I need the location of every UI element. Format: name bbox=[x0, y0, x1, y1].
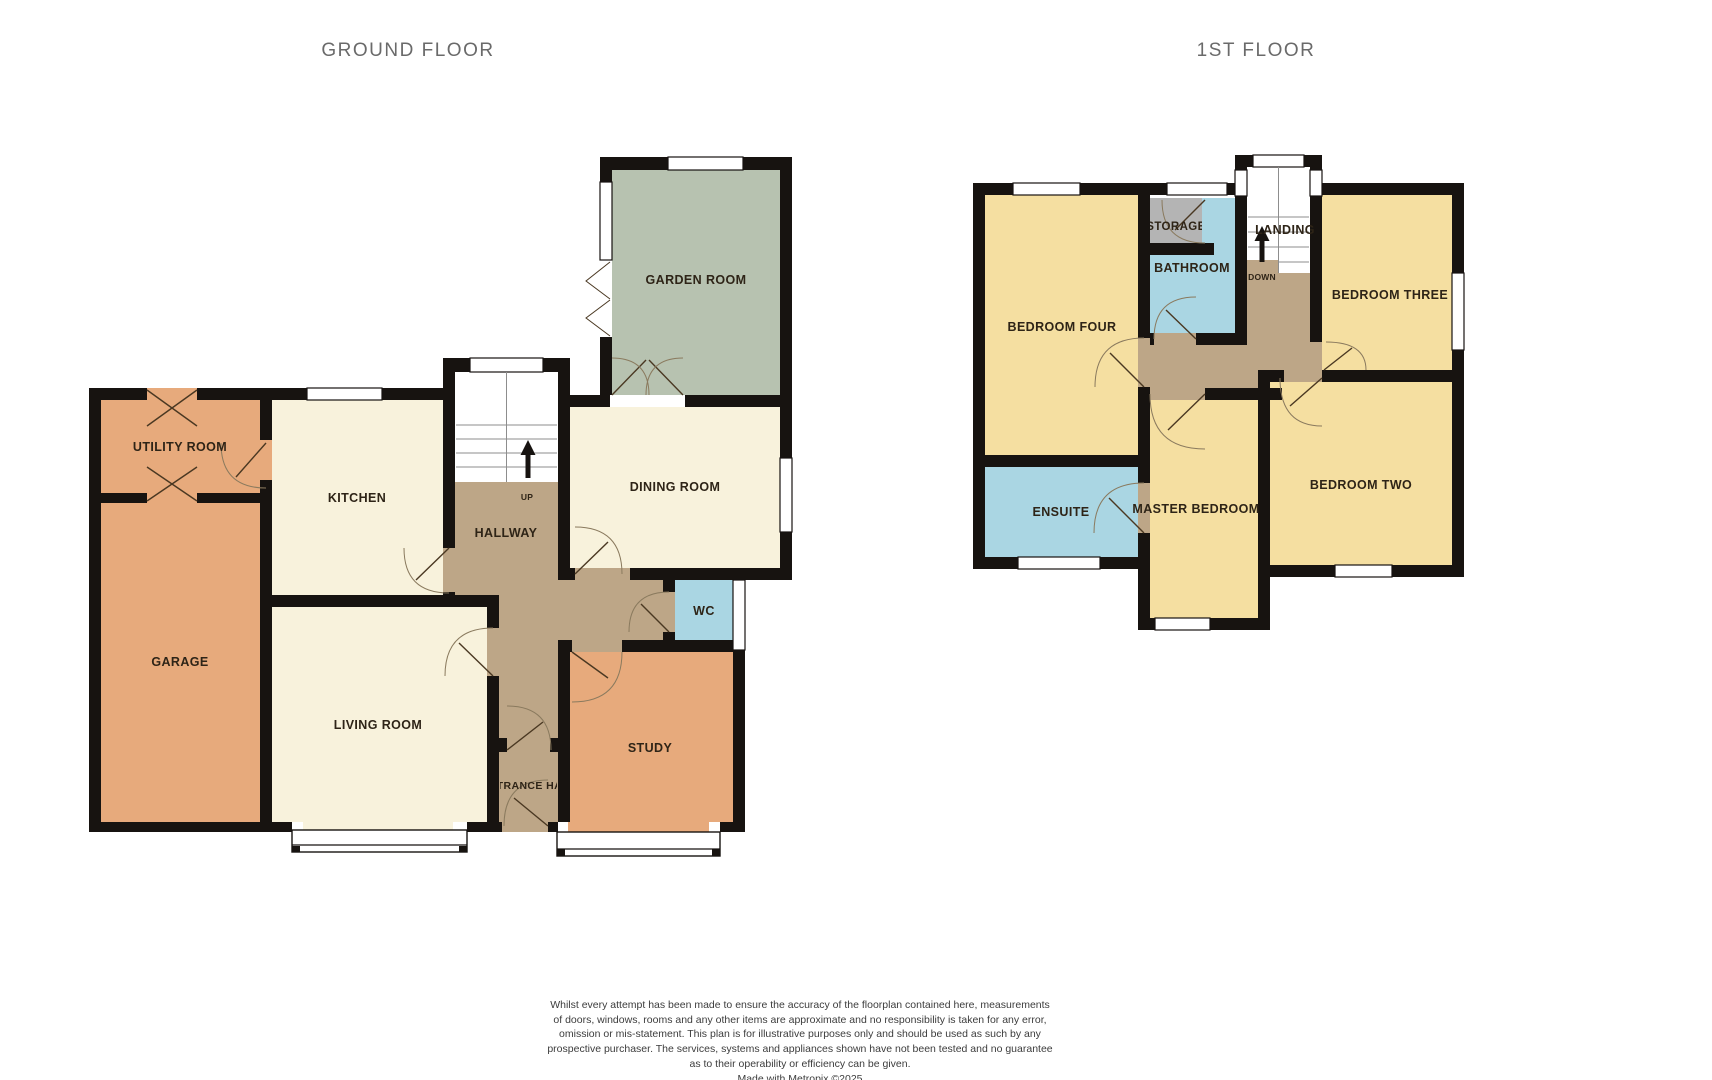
room-label-utility-room: UTILITY ROOM bbox=[133, 440, 227, 454]
room-label-hallway: HALLWAY bbox=[475, 526, 538, 540]
room-label-wc: WC bbox=[693, 604, 715, 618]
room-label-living-room: LIVING ROOM bbox=[334, 718, 422, 732]
disclaimer: Whilst every attempt has been made to en… bbox=[480, 998, 1120, 1080]
stairs-up-label: UP bbox=[521, 492, 533, 502]
room-label-kitchen: KITCHEN bbox=[328, 491, 386, 505]
first-floor-plan bbox=[973, 155, 1464, 630]
room-label-garage: GARAGE bbox=[151, 655, 208, 669]
room-label-study: STUDY bbox=[628, 741, 672, 755]
room-label-bathroom: BATHROOM bbox=[1154, 261, 1230, 275]
living-room-bay-window bbox=[292, 830, 467, 852]
room-label-landing: LANDING bbox=[1255, 223, 1315, 237]
room-label-ensuite: ENSUITE bbox=[1033, 505, 1090, 519]
first-floor-title: 1ST FLOOR bbox=[1197, 40, 1316, 62]
room-label-bedroom-four: BEDROOM FOUR bbox=[1008, 320, 1117, 334]
study-bay-window bbox=[557, 832, 720, 856]
stairs-down-label: DOWN bbox=[1248, 272, 1276, 282]
room-label-storage: STORAGE bbox=[1150, 220, 1202, 234]
disclaimer-line: as to their operability or efficiency ca… bbox=[480, 1057, 1120, 1072]
disclaimer-line: Whilst every attempt has been made to en… bbox=[480, 998, 1120, 1013]
credit-line: Made with Metropix ©2025 bbox=[480, 1072, 1120, 1080]
disclaimer-line: of doors, windows, rooms and any other i… bbox=[480, 1013, 1120, 1028]
disclaimer-line: prospective purchaser. The services, sys… bbox=[480, 1042, 1120, 1057]
disclaimer-line: omission or mis-statement. This plan is … bbox=[480, 1027, 1120, 1042]
room-label-garden-room: GARDEN ROOM bbox=[646, 273, 747, 287]
ground-floor-plan bbox=[89, 157, 792, 856]
floorplan-drawing bbox=[0, 0, 1712, 1080]
ground-floor-title: GROUND FLOOR bbox=[321, 40, 494, 62]
room-label-dining-room: DINING ROOM bbox=[630, 480, 721, 494]
floorplan-page: GROUND FLOOR 1ST FLOOR GARDEN ROOM DININ… bbox=[0, 0, 1712, 1080]
ground-floor-rooms bbox=[101, 170, 780, 838]
room-label-bedroom-three: BEDROOM THREE bbox=[1332, 288, 1448, 302]
room-label-bedroom-two: BEDROOM TWO bbox=[1310, 478, 1412, 492]
room-label-master-bedroom: MASTER BEDROOM bbox=[1132, 502, 1259, 516]
room-label-entrance-hall: ENTRANCE HALL bbox=[500, 779, 557, 793]
